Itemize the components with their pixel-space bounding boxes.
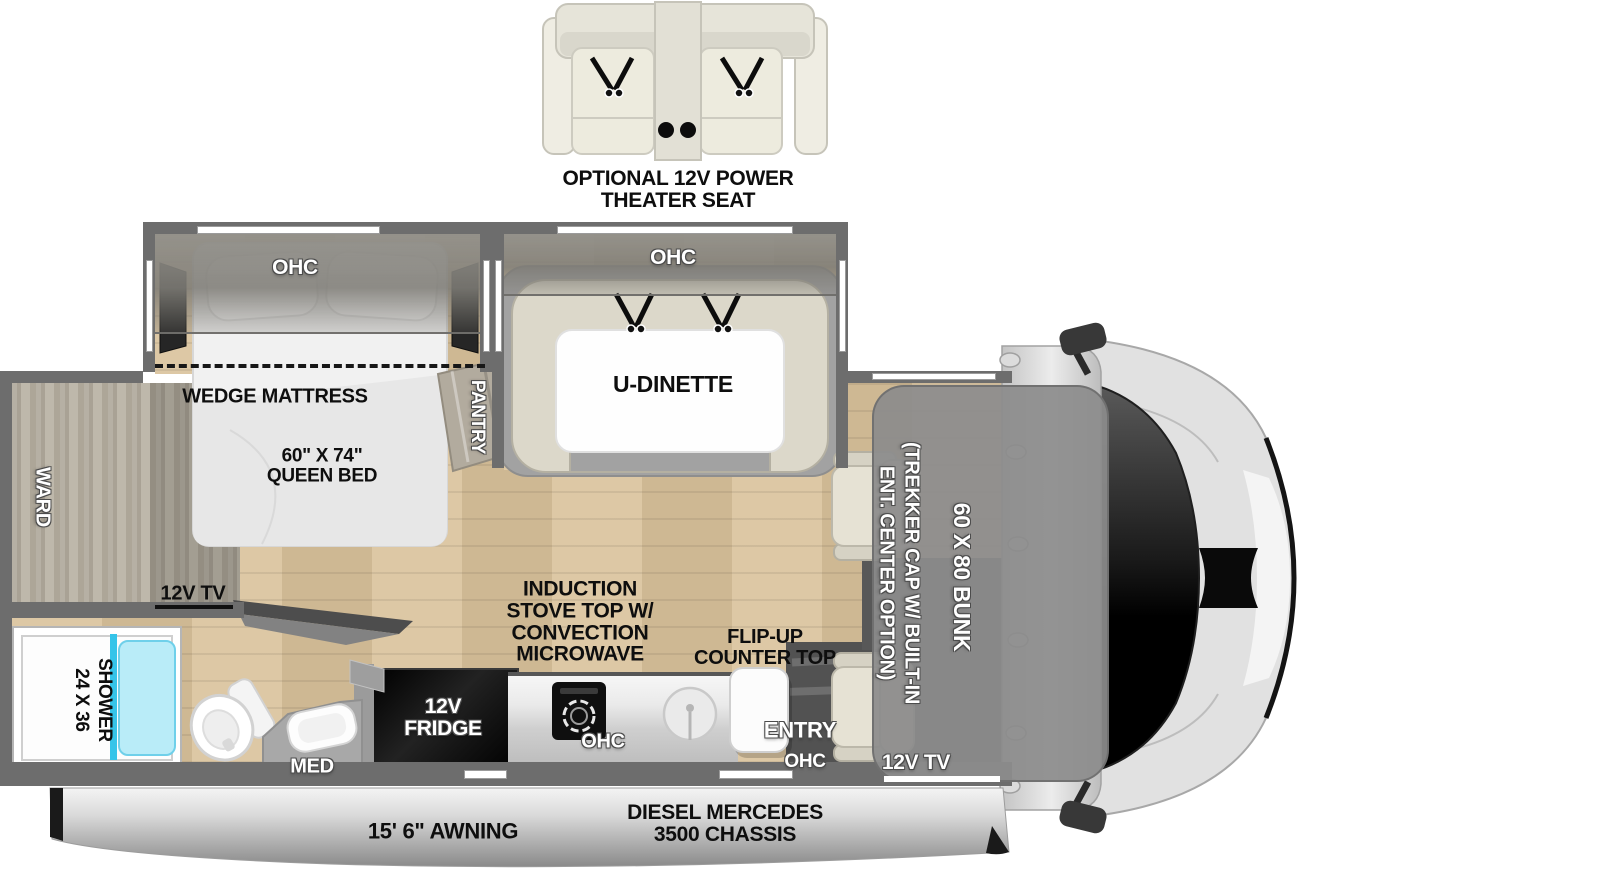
window xyxy=(146,260,153,352)
stove-line1: INDUCTION xyxy=(507,578,654,600)
cab-tv-underline xyxy=(884,776,1000,782)
queen-bed-label: 60" X 74" QUEEN BED xyxy=(267,446,377,486)
dinette-ohc-label: OHC xyxy=(650,247,696,269)
entry-door-window xyxy=(719,770,793,779)
kitchen-ohc-label: OHC xyxy=(581,732,625,753)
window xyxy=(839,260,846,352)
bedroom-tv-label: 12V TV xyxy=(161,584,226,605)
stove-line3: CONVECTION xyxy=(507,622,654,644)
theater-seat-sofa xyxy=(543,2,827,160)
ward-label: WARD xyxy=(32,467,53,527)
fridge-label-line1: 12V xyxy=(404,696,482,718)
stove-line4: MICROWAVE xyxy=(507,644,654,666)
shower-size-label: 24 X 36 xyxy=(71,668,91,731)
theater-seat-label-line1: OPTIONAL 12V POWER xyxy=(562,168,793,190)
bedroom-overhead-cabinet xyxy=(155,234,480,334)
flip-up-line2: COUNTER TOP xyxy=(694,648,836,669)
flip-up-counter xyxy=(730,668,792,758)
queen-bed-size: 60" X 74" xyxy=(267,446,377,466)
bedroom-tv-underline xyxy=(155,605,233,609)
bedroom-ohc-label: OHC xyxy=(272,257,318,279)
u-dinette-label: U-DINETTE xyxy=(613,373,733,397)
flip-up-counter-label: FLIP-UP COUNTER TOP xyxy=(694,627,836,669)
bunk-size-label: 60 X 80 BUNK xyxy=(949,503,973,652)
med-cabinet-label: MED xyxy=(290,757,334,778)
induction-stove-label: INDUCTION STOVE TOP W/ CONVECTION MICROW… xyxy=(507,578,654,665)
chassis-line2: 3500 CHASSIS xyxy=(627,824,823,846)
window xyxy=(495,260,502,352)
kitchen-sink xyxy=(664,688,716,740)
cupholder xyxy=(680,122,696,138)
wall-segment xyxy=(0,371,143,383)
cupholder xyxy=(658,122,674,138)
window xyxy=(197,226,380,234)
grille xyxy=(1199,548,1258,608)
awning-label: 15' 6" AWNING xyxy=(368,821,518,844)
wall-segment xyxy=(0,371,12,774)
window xyxy=(557,226,793,234)
fridge-label: 12V FRIDGE xyxy=(404,696,482,740)
window xyxy=(464,770,507,779)
shower-label: SHOWER xyxy=(94,658,114,742)
bunk-option-line2: ENT. CENTER OPTION) xyxy=(876,466,897,680)
theater-seat-label: OPTIONAL 12V POWER THEATER SEAT xyxy=(562,168,793,212)
queen-bed-type: QUEEN BED xyxy=(267,466,377,486)
entry-label: ENTRY xyxy=(764,720,836,743)
theater-seat-label-line2: THEATER SEAT xyxy=(562,190,793,212)
stove-line2: STOVE TOP W/ xyxy=(507,600,654,622)
chassis-label: DIESEL MERCEDES 3500 CHASSIS xyxy=(627,802,823,846)
bunk-option-line1: (TREKKER CAP W/ BUILT-IN xyxy=(901,442,922,704)
flip-up-line1: FLIP-UP xyxy=(694,627,836,648)
fridge-label-line2: FRIDGE xyxy=(404,718,482,740)
window xyxy=(872,373,996,380)
wedge-mattress-label: WEDGE MATTRESS xyxy=(182,387,367,408)
slide-out-dashed-line xyxy=(155,364,485,368)
rv-floorplan: OPTIONAL 12V POWER THEATER SEAT OHC OHC … xyxy=(0,0,1600,885)
chassis-line1: DIESEL MERCEDES xyxy=(627,802,823,824)
counter-corner xyxy=(350,660,384,692)
awning-bar xyxy=(50,788,1009,867)
window xyxy=(483,260,490,352)
entry-ohc-label: OHC xyxy=(784,752,825,772)
pantry-label: PANTRY xyxy=(467,380,487,454)
cab-tv-label: 12V TV xyxy=(882,752,950,774)
